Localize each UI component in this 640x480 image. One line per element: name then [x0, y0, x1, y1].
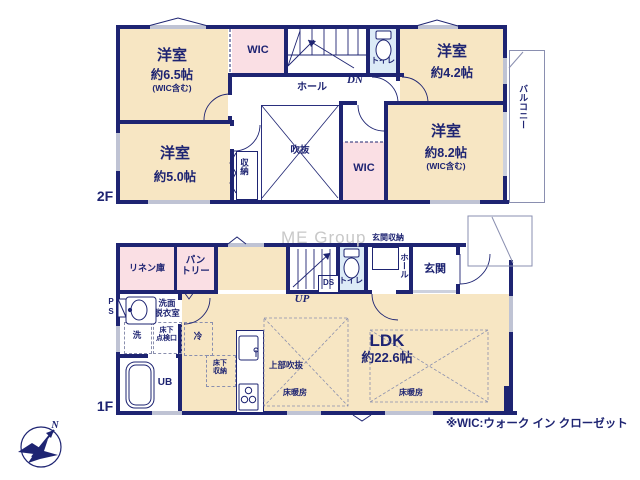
- label-1f-linen: リネン庫: [122, 263, 172, 273]
- label-1f-ub: UB: [152, 377, 178, 388]
- label-2f-closet: 収納: [239, 158, 249, 175]
- label-2f-room82-note: (WIC含む): [400, 162, 492, 172]
- door-2f-room50: [234, 125, 260, 151]
- label-1f-fridge: 冷: [191, 332, 205, 342]
- label-2f-void: 吹抜: [282, 146, 318, 157]
- label-2f-dn: DN: [342, 74, 368, 86]
- room-2f-stairs: [288, 29, 366, 73]
- door-1f-entrance: [460, 254, 490, 284]
- label-1f-washroom: 洗面脱衣室: [149, 299, 185, 318]
- footnote-wic: ※WIC:ウォーク イン クローゼット: [446, 418, 616, 431]
- label-balcony: バルコニー: [518, 84, 528, 129]
- label-2f-room65-size: 約6.5帖: [132, 68, 212, 82]
- label-1f-upper-void: 上部吹抜: [263, 361, 309, 371]
- room-1f-ldk-main: [182, 294, 509, 411]
- label-1f-ldk-name: LDK: [352, 331, 422, 350]
- label-1f-up: UP: [288, 293, 316, 305]
- label-1f-floor-storage: 床下収納: [208, 360, 232, 376]
- label-1f-ps: PS: [106, 297, 116, 316]
- label-2f-floor: 2F: [92, 189, 118, 205]
- floor-plan: 2F 洋室 約6.5帖 (WIC含む) WIC トイレ ホール DN 洋室 約4…: [0, 0, 640, 480]
- room-2f-toilet: [370, 29, 396, 73]
- compass-north-label: N: [49, 420, 61, 431]
- watermark: ME Group: [281, 228, 366, 248]
- door-2f-toilet: [372, 77, 398, 103]
- label-2f-room82-name: 洋室: [400, 124, 492, 141]
- label-1f-washer: 洗: [130, 331, 144, 341]
- label-1f-entrance-storage: 玄関収納: [366, 234, 410, 243]
- room-1f-entrance-storage: [372, 247, 399, 270]
- room-1f-ldk-upper: [218, 247, 286, 290]
- label-1f-floor-heating-right: 床暖房: [395, 389, 427, 398]
- label-2f-wic-side: WIC: [346, 162, 382, 174]
- label-2f-room42-size: 約4.2帖: [410, 66, 494, 80]
- label-1f-ldk-size: 約22.6帖: [347, 351, 427, 366]
- label-2f-wic-top: WIC: [232, 44, 284, 56]
- label-2f-room82-size: 約8.2帖: [400, 146, 492, 160]
- label-2f-room50-size: 約5.0帖: [130, 170, 220, 184]
- label-1f-pantry: パントリー: [179, 256, 212, 277]
- label-1f-toilet: トイレ: [336, 277, 366, 286]
- label-2f-room42-name: 洋室: [410, 44, 494, 61]
- label-1f-floor: 1F: [92, 399, 118, 415]
- label-2f-toilet: トイレ: [366, 57, 400, 66]
- label-2f-hall: ホール: [290, 82, 334, 93]
- label-2f-room50-name: 洋室: [130, 146, 220, 163]
- label-1f-floor-hatch: 床下点検口: [155, 327, 178, 343]
- label-1f-entrance: 玄関: [416, 263, 454, 275]
- vent-tick-bottom: [353, 415, 371, 421]
- label-1f-hall: ホール: [399, 253, 409, 279]
- compass-north-icon: [18, 427, 61, 467]
- label-2f-room65-note: (WIC含む): [132, 84, 212, 94]
- kitchen-counter: [236, 330, 264, 413]
- entrance-porch: [468, 216, 532, 266]
- label-1f-floor-heating-left: 床暖房: [279, 389, 311, 398]
- label-2f-room65-name: 洋室: [132, 48, 212, 65]
- room-2f-vestibule: [343, 105, 384, 142]
- room-2f-bedroom-4_2: [400, 29, 503, 101]
